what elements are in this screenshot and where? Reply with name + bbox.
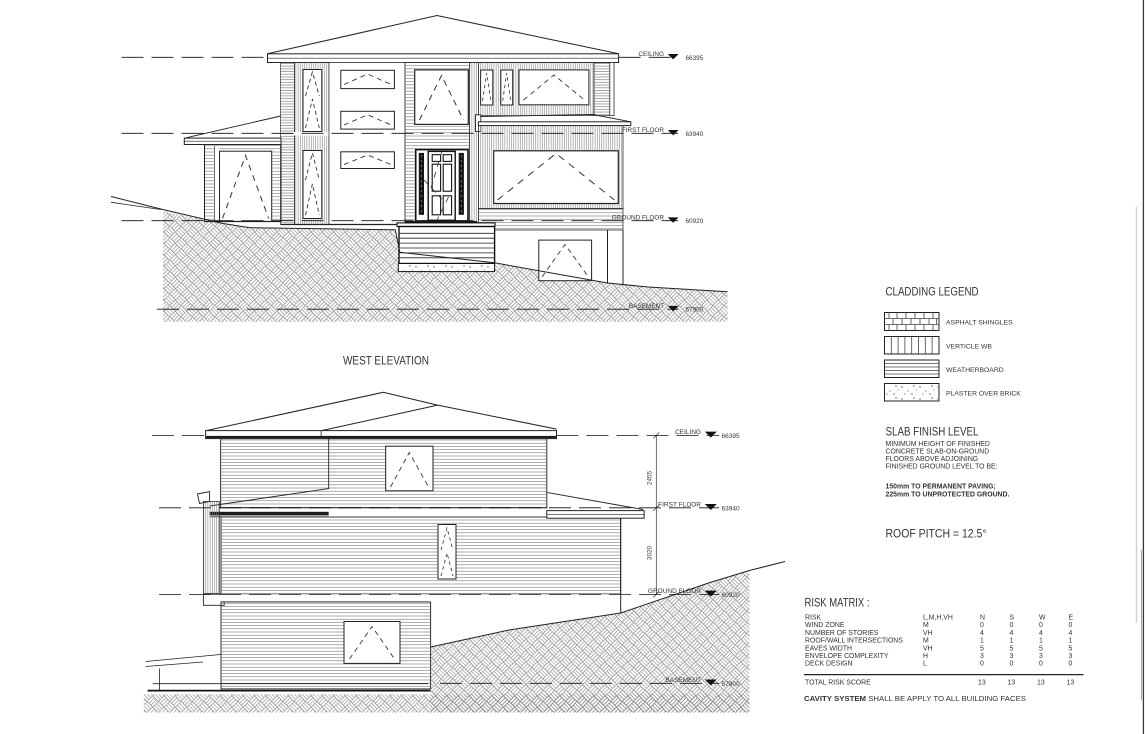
svg-text:WIND ZONE: WIND ZONE [805, 622, 845, 629]
svg-text:FLOORS ABOVE ADJOINING: FLOORS ABOVE ADJOINING [886, 456, 979, 463]
svg-text:4: 4 [1039, 630, 1043, 637]
svg-text:CEILING: CEILING [675, 429, 701, 436]
svg-text:WEST ELEVATION: WEST ELEVATION [343, 355, 429, 368]
svg-text:57900: 57900 [686, 307, 704, 314]
svg-text:TOTAL RISK SCORE: TOTAL RISK SCORE [805, 680, 871, 687]
svg-text:3: 3 [980, 653, 984, 660]
svg-text:SLAB FINISH LEVEL: SLAB FINISH LEVEL [886, 425, 979, 439]
svg-text:L: L [923, 661, 927, 668]
svg-text:L,M,H,VH: L,M,H,VH [923, 615, 953, 622]
svg-text:CEILING: CEILING [638, 51, 664, 58]
svg-text:BASEMENT: BASEMENT [665, 677, 701, 684]
svg-text:ENVELOPE COMPLEXITY: ENVELOPE COMPLEXITY [805, 653, 889, 660]
svg-text:FINISHED GROUND LEVEL TO BE:: FINISHED GROUND LEVEL TO BE: [886, 464, 998, 471]
svg-text:DECK DESIGN: DECK DESIGN [805, 661, 853, 668]
svg-text:4: 4 [1069, 630, 1073, 637]
svg-text:57900: 57900 [722, 681, 740, 688]
svg-text:M: M [923, 638, 929, 645]
svg-text:MINIMUM HEIGHT OF FINISHED: MINIMUM HEIGHT OF FINISHED [886, 441, 990, 448]
svg-text:225mm TO UNPROTECTED GROUND.: 225mm TO UNPROTECTED GROUND. [886, 492, 1010, 499]
svg-text:M: M [923, 622, 929, 629]
svg-text:CLADDING LEGEND: CLADDING LEGEND [886, 285, 979, 299]
svg-text:3: 3 [1010, 653, 1014, 660]
svg-text:66395: 66395 [686, 55, 704, 62]
svg-text:150mm TO PERMANENT PAVING;: 150mm TO PERMANENT PAVING; [886, 484, 996, 491]
svg-text:0: 0 [1069, 661, 1073, 668]
svg-text:RISK MATRIX :: RISK MATRIX : [805, 596, 870, 610]
svg-text:WEATHERBOARD: WEATHERBOARD [946, 367, 1004, 374]
svg-text:5: 5 [1010, 645, 1014, 652]
svg-text:CONCRETE SLAB-ON-GROUND: CONCRETE SLAB-ON-GROUND [886, 449, 990, 456]
svg-text:1: 1 [1039, 638, 1043, 645]
svg-text:ASPHALT SHINGLES: ASPHALT SHINGLES [946, 320, 1013, 327]
svg-text:3020: 3020 [647, 545, 654, 560]
svg-text:PLASTER OVER BRICK: PLASTER OVER BRICK [946, 391, 1021, 398]
svg-text:13: 13 [1037, 680, 1045, 687]
svg-text:3: 3 [1069, 653, 1073, 660]
svg-text:4: 4 [980, 630, 984, 637]
svg-text:1: 1 [1069, 638, 1073, 645]
svg-text:0: 0 [1010, 661, 1014, 668]
svg-text:1: 1 [1010, 638, 1014, 645]
svg-text:EAVES WIDTH: EAVES WIDTH [805, 645, 852, 652]
svg-text:GROUND FLOOR: GROUND FLOOR [648, 588, 701, 595]
svg-text:13: 13 [1008, 680, 1016, 687]
svg-text:FIRST FLOOR: FIRST FLOOR [658, 501, 701, 508]
svg-text:5: 5 [1039, 645, 1043, 652]
svg-text:0: 0 [1069, 622, 1073, 629]
svg-text:4: 4 [1010, 630, 1014, 637]
svg-text:W: W [1039, 615, 1046, 622]
svg-text:0: 0 [1010, 622, 1014, 629]
svg-text:0: 0 [980, 622, 984, 629]
svg-text:60920: 60920 [686, 218, 704, 225]
svg-text:63940: 63940 [722, 505, 740, 512]
svg-text:ROOF/WALL INTERSECTIONS: ROOF/WALL INTERSECTIONS [805, 638, 903, 645]
svg-text:66395: 66395 [722, 433, 740, 440]
svg-text:0: 0 [1039, 661, 1043, 668]
svg-text:VH: VH [923, 645, 933, 652]
svg-text:13: 13 [978, 680, 986, 687]
svg-text:CAVITY SYSTEM SHALL BE APPLY T: CAVITY SYSTEM SHALL BE APPLY TO ALL BUIL… [804, 694, 1026, 703]
svg-text:GROUND FLOOR: GROUND FLOOR [612, 214, 665, 221]
svg-text:NUMBER OF STORIES: NUMBER OF STORIES [805, 630, 879, 637]
svg-text:E: E [1069, 615, 1074, 622]
svg-text:13: 13 [1067, 680, 1075, 687]
svg-text:5: 5 [1069, 645, 1073, 652]
svg-text:1: 1 [980, 638, 984, 645]
svg-text:0: 0 [980, 661, 984, 668]
svg-text:FIRST FLOOR: FIRST FLOOR [622, 127, 665, 134]
svg-text:H: H [923, 653, 928, 660]
svg-text:RISK: RISK [805, 615, 821, 622]
svg-text:BASEMENT: BASEMENT [629, 303, 664, 310]
svg-text:3: 3 [1039, 653, 1043, 660]
svg-text:N: N [980, 615, 985, 622]
svg-text:5: 5 [980, 645, 984, 652]
svg-text:VERTICLE WB: VERTICLE WB [946, 344, 992, 351]
svg-text:ROOF PITCH = 12.5°: ROOF PITCH = 12.5° [886, 527, 987, 541]
svg-text:63940: 63940 [686, 131, 704, 138]
svg-text:S: S [1010, 615, 1015, 622]
svg-text:VH: VH [923, 630, 933, 637]
svg-text:2455: 2455 [647, 470, 654, 485]
svg-text:0: 0 [1039, 622, 1043, 629]
svg-text:60920: 60920 [722, 592, 740, 599]
